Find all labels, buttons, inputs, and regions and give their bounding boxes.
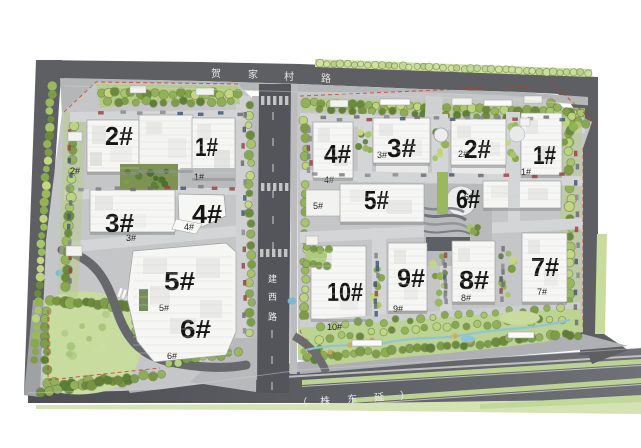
svg-text:家: 家 (248, 68, 258, 81)
svg-text:3#: 3# (377, 150, 387, 160)
svg-text:西: 西 (268, 292, 277, 302)
svg-text:4#: 4# (192, 199, 223, 229)
svg-text:建: 建 (268, 273, 277, 284)
svg-text:3#: 3# (387, 133, 417, 163)
svg-text:5#: 5# (313, 201, 323, 211)
svg-text:株: 株 (320, 394, 331, 408)
svg-text:6#: 6# (464, 192, 474, 202)
svg-text:9#: 9# (397, 263, 426, 293)
svg-text:（: （ (297, 397, 308, 410)
svg-text:1#: 1# (533, 140, 556, 170)
svg-text:1#: 1# (195, 132, 218, 162)
svg-text:2#: 2# (458, 149, 468, 159)
svg-text:东: 东 (347, 392, 358, 406)
svg-text:6#: 6# (167, 351, 177, 361)
svg-text:5#: 5# (159, 303, 169, 313)
svg-text:5#: 5# (364, 185, 389, 215)
svg-text:延: 延 (374, 391, 385, 404)
svg-text:10#: 10# (327, 322, 342, 332)
svg-text:4#: 4# (184, 222, 194, 232)
svg-text:2#: 2# (464, 134, 492, 164)
svg-text:）: ） (400, 390, 411, 403)
svg-text:4#: 4# (324, 139, 352, 169)
svg-text:路: 路 (268, 311, 277, 322)
svg-text:贺: 贺 (211, 68, 221, 80)
svg-text:村: 村 (284, 70, 294, 83)
svg-text:2#: 2# (105, 121, 134, 151)
svg-text:路: 路 (321, 72, 331, 85)
svg-text:10#: 10# (327, 277, 363, 307)
svg-text:8#: 8# (459, 265, 490, 295)
svg-text:8#: 8# (461, 293, 471, 303)
svg-text:7#: 7# (537, 287, 547, 297)
